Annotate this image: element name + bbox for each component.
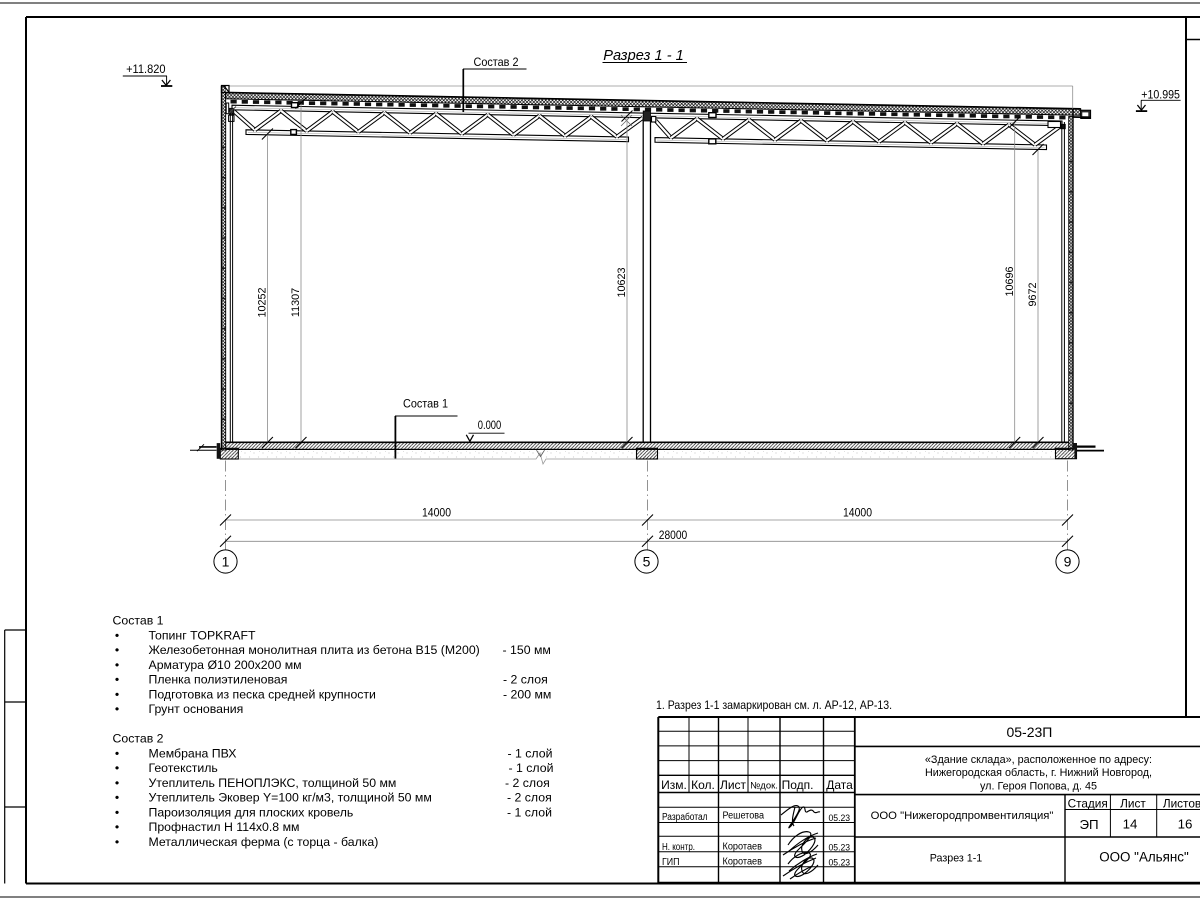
svg-text:•: • bbox=[115, 673, 119, 687]
svg-text:•: • bbox=[115, 820, 119, 834]
svg-text:•: • bbox=[115, 791, 119, 805]
svg-text:•: • bbox=[115, 687, 119, 701]
svg-text:Железобетонная монолитная плит: Железобетонная монолитная плита из бетон… bbox=[149, 643, 480, 657]
svg-text:Арматура Ø10 200х200 мм: Арматура Ø10 200х200 мм bbox=[149, 658, 302, 672]
svg-text:5: 5 bbox=[643, 554, 651, 570]
svg-text:Изм.: Изм. bbox=[661, 778, 687, 792]
svg-text:9672: 9672 bbox=[1027, 282, 1039, 306]
svg-text:Состав 2: Состав 2 bbox=[474, 55, 519, 69]
svg-text:0.000: 0.000 bbox=[478, 418, 502, 432]
svg-text:Пароизоляция для плоских крове: Пароизоляция для плоских кровель bbox=[149, 805, 354, 819]
svg-text:Дата: Дата bbox=[826, 778, 853, 792]
svg-text:- 1 слой: - 1 слой bbox=[508, 746, 553, 760]
svg-text:Утеплитель ПЕНОПЛЭКС, толщиной: Утеплитель ПЕНОПЛЭКС, толщиной 50 мм bbox=[149, 776, 397, 790]
svg-text:Нижегородская область, г. Нижн: Нижегородская область, г. Нижний Новгоро… bbox=[925, 767, 1152, 779]
svg-text:ЭП: ЭП bbox=[1079, 817, 1098, 832]
svg-text:Стадия: Стадия bbox=[1068, 797, 1108, 811]
svg-text:•: • bbox=[115, 835, 119, 849]
svg-text:ул. Героя Попова, д. 45: ул. Героя Попова, д. 45 bbox=[980, 780, 1097, 792]
svg-text:Профнастил Н 114х0.8 мм: Профнастил Н 114х0.8 мм bbox=[149, 820, 300, 834]
svg-text:•: • bbox=[115, 776, 119, 790]
svg-text:05.23: 05.23 bbox=[829, 858, 851, 868]
svg-text:16: 16 bbox=[1178, 817, 1193, 832]
svg-text:Разрез 1-1: Разрез 1-1 bbox=[930, 853, 983, 865]
svg-text:ООО "Нижегородпромвентиляция": ООО "Нижегородпромвентиляция" bbox=[871, 810, 1054, 822]
svg-text:1. Разрез 1-1 замаркирован см.: 1. Разрез 1-1 замаркирован см. л. АР-12,… bbox=[656, 698, 892, 712]
svg-text:28000: 28000 bbox=[659, 528, 688, 542]
svg-text:Металлическая ферма (с торца -: Металлическая ферма (с торца - балка) bbox=[149, 835, 379, 849]
svg-text:Состав 1: Состав 1 bbox=[403, 397, 448, 411]
svg-text:Топинг TOPKRAFT: Топинг TOPKRAFT bbox=[149, 628, 256, 642]
svg-text:Лист: Лист bbox=[1120, 797, 1146, 811]
svg-text:Н. контр.: Н. контр. bbox=[662, 842, 695, 853]
svg-text:- 200 мм: - 200 мм bbox=[503, 687, 551, 701]
svg-text:14: 14 bbox=[1123, 817, 1138, 832]
svg-text:9: 9 bbox=[1064, 554, 1072, 570]
svg-text:Пленка полиэтиленовая: Пленка полиэтиленовая bbox=[149, 673, 288, 687]
svg-text:Мембрана ПВХ: Мембрана ПВХ bbox=[149, 746, 237, 760]
svg-text:- 150 мм: - 150 мм bbox=[503, 643, 551, 657]
svg-text:- 2 слоя: - 2 слоя bbox=[503, 673, 548, 687]
svg-text:- 1 слой: - 1 слой bbox=[509, 761, 554, 775]
svg-text:11307: 11307 bbox=[290, 288, 302, 317]
svg-text:Утеплитель Эковер Y=100 кг/м3,: Утеплитель Эковер Y=100 кг/м3, толщиной … bbox=[149, 791, 432, 805]
svg-text:•: • bbox=[115, 702, 119, 716]
svg-text:14000: 14000 bbox=[422, 506, 451, 520]
svg-text:ГИП: ГИП bbox=[662, 857, 680, 868]
svg-text:Разрез 1 - 1: Разрез 1 - 1 bbox=[603, 48, 684, 64]
svg-text:Подготовка из песка средней кр: Подготовка из песка средней крупности bbox=[149, 687, 377, 701]
svg-text:•: • bbox=[115, 761, 119, 775]
svg-text:1: 1 bbox=[222, 554, 230, 570]
svg-text:•: • bbox=[115, 746, 119, 760]
svg-text:10252: 10252 bbox=[257, 287, 269, 317]
svg-text:Состав 2: Состав 2 bbox=[113, 732, 164, 746]
svg-text:Кол.: Кол. bbox=[691, 778, 715, 792]
svg-text:•: • bbox=[115, 658, 119, 672]
svg-text:05.23: 05.23 bbox=[829, 813, 851, 823]
svg-text:Состав 1: Состав 1 bbox=[113, 614, 164, 628]
svg-text:- 1 слой: - 1 слой bbox=[507, 805, 552, 819]
svg-text:Лист: Лист bbox=[720, 778, 747, 792]
svg-text:ООО "Альянс": ООО "Альянс" bbox=[1099, 850, 1189, 865]
svg-text:Подп.: Подп. bbox=[782, 778, 814, 792]
svg-text:10623: 10623 bbox=[616, 267, 628, 297]
svg-text:- 2 слоя: - 2 слоя bbox=[505, 776, 550, 790]
svg-text:Коротаев: Коротаев bbox=[723, 842, 763, 853]
svg-text:Решетова: Решетова bbox=[723, 811, 765, 822]
svg-text:+11.820: +11.820 bbox=[126, 62, 166, 76]
svg-text:•: • bbox=[115, 628, 119, 642]
svg-text:Грунт основания: Грунт основания bbox=[149, 702, 244, 716]
svg-text:+10.995: +10.995 bbox=[1141, 87, 1180, 101]
svg-text:Коротаев: Коротаев bbox=[723, 857, 763, 868]
svg-text:05.23: 05.23 bbox=[829, 843, 851, 853]
svg-text:«Здание склада», расположенное: «Здание склада», расположенное по адресу… bbox=[925, 754, 1152, 766]
svg-text:14000: 14000 bbox=[843, 506, 872, 520]
svg-text:- 2 слоя: - 2 слоя bbox=[507, 791, 552, 805]
svg-text:•: • bbox=[115, 643, 119, 657]
svg-text:05-23П: 05-23П bbox=[1006, 724, 1052, 740]
svg-text:Геотекстиль: Геотекстиль bbox=[149, 761, 218, 775]
svg-text:№док.: №док. bbox=[750, 781, 778, 792]
svg-text:10696: 10696 bbox=[1004, 266, 1016, 296]
svg-text:•: • bbox=[115, 805, 119, 819]
svg-text:Разработал: Разработал bbox=[662, 812, 708, 823]
svg-text:Листов: Листов bbox=[1163, 797, 1200, 811]
